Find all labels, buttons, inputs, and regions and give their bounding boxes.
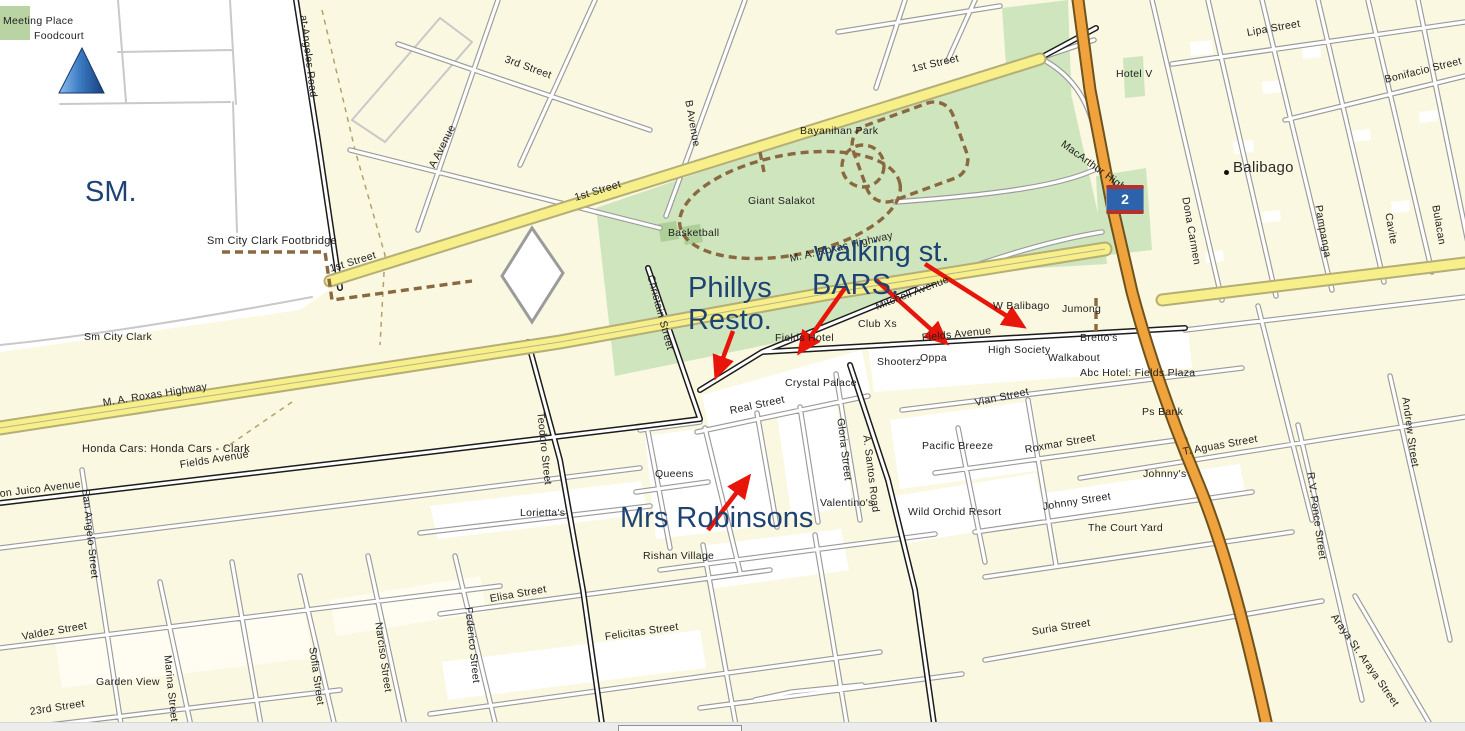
map-label: 23rd Street [29, 698, 85, 717]
user-annotation-text: Mrs Robinsons [620, 504, 813, 533]
map-label: Pacific Breeze [922, 441, 993, 452]
route-2-shield-icon: 2 [1106, 185, 1144, 214]
map-label: Giant Salakot [748, 196, 815, 207]
map-label: Balibago [1233, 160, 1294, 175]
map-label: Elisa Street [489, 584, 547, 604]
map-label: Sofia Street [307, 647, 326, 706]
map-labels-layer: Meeting PlaceFoodcourtSm City Clark Foot… [0, 0, 1465, 731]
map-label: Pampanga [1313, 204, 1333, 258]
map-label: Johnny's [1143, 469, 1187, 480]
map-label: Christain Street [645, 274, 675, 351]
map-label: B Avenue [683, 99, 702, 147]
user-annotation-text: Resto. [688, 306, 772, 335]
map-label: Oppa [920, 353, 947, 364]
map-label: Felicitas Street [604, 622, 679, 643]
map-label: Lorietta's [520, 508, 565, 519]
map-label: Bulacan [1430, 204, 1447, 245]
map-label: A Avenue [427, 123, 458, 169]
map-label: Vian Street [974, 387, 1030, 409]
map-label: Gloria Street [835, 418, 853, 482]
map-label: Meeting Place [3, 16, 73, 27]
map-label: Real Street [729, 395, 786, 417]
map-label: Araya St. Araya Street [1329, 612, 1401, 709]
clipped-ui-fragment[interactable] [618, 725, 742, 731]
map-label: 1st Street [573, 179, 622, 203]
map-label: Marina Street [162, 655, 179, 723]
map-label: at-Angeles Road [298, 15, 319, 98]
map-label: 1st Street [328, 250, 377, 274]
map-label: Jumong [1062, 304, 1101, 315]
map-label: Suria Street [1031, 618, 1091, 638]
route-number: 2 [1121, 191, 1129, 207]
map-label: Club Xs [858, 319, 897, 330]
map-label: M. A. Roxas Highway [102, 382, 208, 409]
map-label: Fields Avenue [921, 326, 991, 344]
map-label: Crystal Palace [785, 378, 857, 389]
map-label: Cavite [1383, 212, 1399, 245]
map-label: Wild Orchid Resort [908, 507, 1002, 518]
map-label: Hotel V [1116, 69, 1153, 80]
map-label: Roxmar Street [1024, 433, 1096, 456]
map-label: 3rd Street [503, 54, 553, 81]
map-label: The Court Yard [1088, 523, 1163, 534]
map-label: High Society [988, 345, 1051, 356]
map-label: R.V. Ponce Street [1305, 472, 1328, 561]
map-label: Valdez Street [21, 621, 88, 643]
map-label: Sm City Clark Footbridge [207, 236, 337, 247]
map-viewport[interactable]: Meeting PlaceFoodcourtSm City Clark Foot… [0, 0, 1465, 731]
map-label: Ps Bank [1142, 407, 1183, 418]
map-label: Bayanihan Park [800, 126, 878, 137]
map-label: Dona Carmen [1180, 196, 1202, 265]
map-label: Fields Hotel [775, 333, 834, 344]
map-label: Narciso Street [373, 622, 393, 694]
map-label: Foodcourt [34, 31, 84, 42]
map-label: Valentino's [820, 498, 874, 509]
map-label: W Balibago [993, 301, 1050, 312]
user-annotation-text: BARS. [812, 271, 899, 300]
map-label: Rishan Village [643, 551, 714, 562]
map-label: Bonifacio Street [1384, 56, 1463, 85]
map-label: Walkabout [1048, 353, 1100, 364]
map-label: Garden View [96, 677, 160, 688]
map-label: Queens [655, 469, 694, 480]
map-label: Basketball [668, 228, 719, 239]
map-label: Teodoro Street [535, 412, 553, 486]
map-label: 1st Street [911, 53, 960, 74]
map-label: Andrew Street [1400, 397, 1420, 468]
balibago-place-dot-icon [1224, 170, 1229, 175]
user-annotation-text: Phillys [688, 274, 772, 303]
map-label: Bretto's [1080, 333, 1118, 344]
map-label: San Angelo Street [80, 489, 100, 579]
window-edge-bar [0, 722, 1465, 731]
user-annotation-text: walking st. [814, 238, 949, 267]
map-label: Don Juico Avenue [0, 479, 81, 500]
map-label: Sm City Clark [84, 332, 152, 343]
map-label: Johnny Street [1042, 491, 1111, 512]
map-label: Federico Street [463, 607, 481, 684]
map-label: Abc Hotel: Fields Plaza [1080, 368, 1195, 379]
map-label: Shooterz [877, 357, 921, 368]
user-annotation-text: SM. [85, 178, 137, 207]
map-label: T. Aguas Street [1182, 434, 1258, 457]
map-label: Lipa Street [1246, 19, 1301, 39]
